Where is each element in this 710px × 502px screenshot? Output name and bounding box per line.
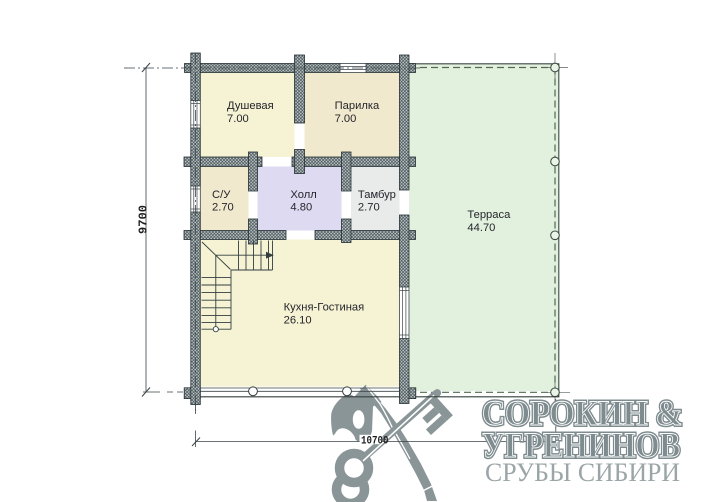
svg-text:7.00: 7.00 xyxy=(335,113,357,125)
svg-text:7.00: 7.00 xyxy=(227,113,249,125)
svg-text:Терраса: Терраса xyxy=(467,209,511,221)
svg-text:Парилка: Парилка xyxy=(335,100,380,112)
svg-text:Кухня-Гостиная: Кухня-Гостиная xyxy=(284,302,365,314)
svg-text:Тамбур: Тамбур xyxy=(358,189,396,201)
svg-text:С/У: С/У xyxy=(212,189,231,201)
svg-text:26.10: 26.10 xyxy=(284,315,312,327)
svg-text:4.80: 4.80 xyxy=(290,201,312,213)
svg-text:2.70: 2.70 xyxy=(358,201,380,213)
svg-text:2.70: 2.70 xyxy=(212,201,234,213)
svg-text:44.70: 44.70 xyxy=(467,222,495,234)
svg-text:Холл: Холл xyxy=(290,189,316,201)
svg-text:10700: 10700 xyxy=(361,435,389,447)
svg-text:9700: 9700 xyxy=(137,205,151,234)
svg-text:СРУБЫ СИБИРИ: СРУБЫ СИБИРИ xyxy=(485,458,680,487)
svg-text:Душевая: Душевая xyxy=(227,100,274,112)
